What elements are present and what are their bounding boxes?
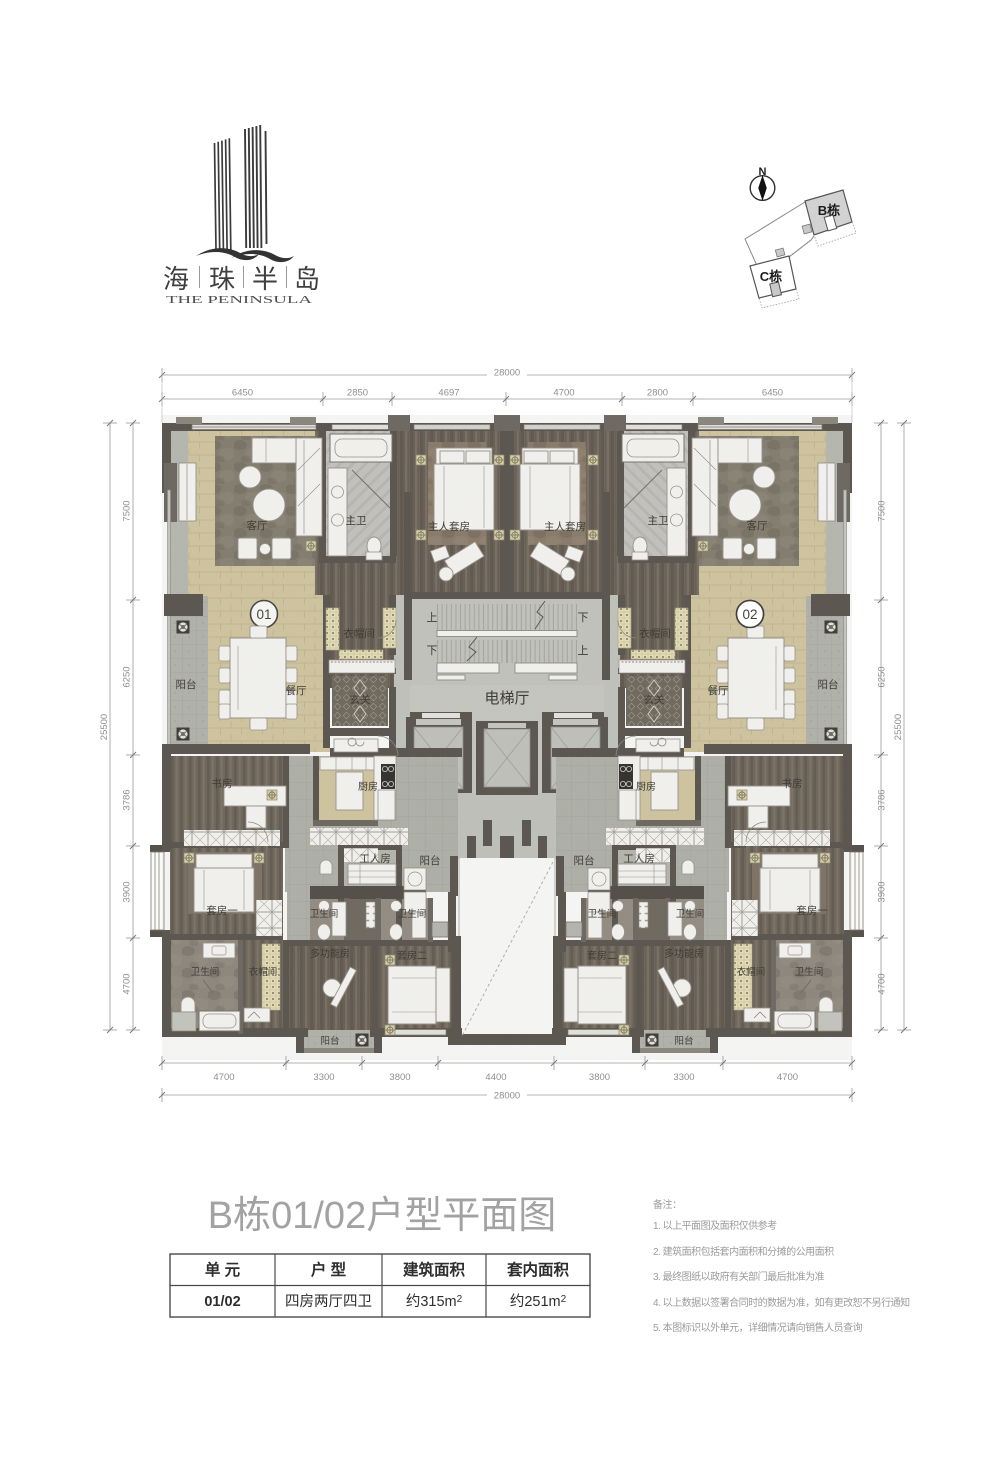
svg-text:阳台: 阳台 [674, 1035, 693, 1047]
svg-text:衣帽间: 衣帽间 [249, 966, 278, 978]
svg-text:卫生间: 卫生间 [588, 908, 617, 920]
svg-text:餐厅: 餐厅 [286, 684, 307, 697]
svg-text:01/02: 01/02 [204, 1294, 240, 1310]
svg-text:卫生间: 卫生间 [398, 908, 427, 920]
svg-text:25500: 25500 [99, 714, 110, 740]
svg-text:四房两厅四卫: 四房两厅四卫 [285, 1293, 372, 1310]
svg-text:3786: 3786 [122, 789, 133, 810]
svg-text:海: 海 [163, 264, 189, 294]
svg-text:3900: 3900 [877, 881, 888, 902]
svg-text:客厅: 客厅 [247, 519, 268, 532]
svg-text:3900: 3900 [122, 881, 133, 902]
svg-text:半: 半 [252, 264, 278, 294]
svg-text:户 型: 户 型 [311, 1260, 347, 1279]
svg-text:25500: 25500 [893, 714, 904, 740]
svg-text:卫生间: 卫生间 [191, 966, 220, 978]
svg-text:6450: 6450 [232, 388, 253, 399]
svg-text:7500: 7500 [877, 500, 888, 521]
svg-text:卫生间: 卫生间 [310, 908, 339, 920]
svg-text:28000: 28000 [494, 1091, 520, 1102]
svg-text:主人套房: 主人套房 [544, 520, 586, 533]
svg-text:阳台: 阳台 [420, 854, 441, 867]
svg-text:02: 02 [742, 607, 757, 622]
svg-text:套房二: 套房二 [587, 949, 617, 962]
svg-text:4700: 4700 [553, 388, 574, 399]
svg-text:阳台: 阳台 [818, 678, 839, 691]
svg-text:衣帽间: 衣帽间 [737, 966, 766, 978]
svg-text:B栋01/02户型平面图: B栋01/02户型平面图 [208, 1195, 556, 1237]
svg-text:书房: 书房 [212, 777, 233, 790]
svg-text:套内面积: 套内面积 [507, 1260, 570, 1279]
svg-text:主卫: 主卫 [648, 515, 669, 527]
svg-text:备注：: 备注： [653, 1198, 682, 1211]
svg-text:2800: 2800 [647, 388, 668, 399]
svg-text:4700: 4700 [777, 1072, 798, 1083]
svg-text:阳台: 阳台 [574, 854, 595, 867]
svg-text:4700: 4700 [877, 973, 888, 994]
svg-text:客厅: 客厅 [747, 519, 768, 532]
svg-text:多功能房: 多功能房 [310, 947, 350, 960]
svg-text:上: 上 [427, 611, 438, 624]
svg-text:阳台: 阳台 [176, 678, 197, 691]
svg-text:厨房: 厨房 [358, 780, 378, 793]
svg-text:多功能房: 多功能房 [664, 947, 704, 960]
svg-text:建筑面积: 建筑面积 [403, 1260, 466, 1279]
svg-text:电梯厅: 电梯厅 [484, 690, 529, 707]
svg-text:书房: 书房 [782, 777, 803, 790]
svg-text:套房一: 套房一 [796, 904, 828, 917]
svg-text:套房一: 套房一 [206, 904, 238, 917]
svg-text:下: 下 [427, 645, 438, 657]
svg-text:2850: 2850 [347, 388, 368, 399]
svg-text:2. 建筑面积包括套内面积和分摊的公用面积: 2. 建筑面积包括套内面积和分摊的公用面积 [653, 1245, 834, 1258]
svg-text:28000: 28000 [494, 368, 520, 379]
svg-text:衣帽间: 衣帽间 [343, 627, 375, 640]
svg-text:1. 以上平面图及面积仅供参考: 1. 以上平面图及面积仅供参考 [653, 1219, 777, 1232]
svg-text:4697: 4697 [438, 388, 459, 399]
svg-text:餐厅: 餐厅 [708, 684, 729, 697]
svg-text:工人房: 工人房 [623, 852, 655, 865]
svg-text:约251m2: 约251m2 [510, 1293, 567, 1310]
svg-text:4400: 4400 [485, 1072, 506, 1083]
svg-text:3. 最终图纸以政府有关部门最后批准为准: 3. 最终图纸以政府有关部门最后批准为准 [653, 1270, 825, 1283]
svg-text:3300: 3300 [313, 1072, 334, 1083]
svg-text:4. 以上数据以签署合同时的数据为准，如有更改恕不另行通知: 4. 以上数据以签署合同时的数据为准，如有更改恕不另行通知 [653, 1296, 910, 1309]
svg-text:6450: 6450 [762, 388, 783, 399]
svg-text:衣帽间: 衣帽间 [639, 627, 671, 640]
svg-text:6250: 6250 [877, 666, 888, 687]
svg-text:6250: 6250 [122, 666, 133, 687]
svg-text:主人套房: 主人套房 [428, 520, 470, 533]
svg-text:上: 上 [578, 644, 589, 657]
svg-text:套房二: 套房二 [397, 949, 427, 962]
svg-text:主卫: 主卫 [346, 515, 367, 527]
svg-text:3800: 3800 [389, 1072, 410, 1083]
svg-text:3786: 3786 [877, 789, 888, 810]
svg-text:珠: 珠 [209, 264, 235, 294]
svg-text:5. 本图标识以外单元，详细情况请向销售人员查询: 5. 本图标识以外单元，详细情况请向销售人员查询 [653, 1321, 863, 1334]
svg-text:下: 下 [578, 612, 589, 624]
svg-text:玄关: 玄关 [350, 693, 371, 706]
svg-text:3800: 3800 [589, 1072, 610, 1083]
svg-text:4700: 4700 [213, 1072, 234, 1083]
svg-text:单 元: 单 元 [205, 1260, 241, 1279]
svg-text:7500: 7500 [122, 500, 133, 521]
svg-text:厨房: 厨房 [636, 780, 656, 793]
svg-text:卫生间: 卫生间 [795, 966, 824, 978]
svg-text:约315m2: 约315m2 [406, 1293, 463, 1310]
svg-text:卫生间: 卫生间 [676, 908, 705, 920]
svg-text:B栋: B栋 [818, 203, 840, 218]
svg-text:THE PENINSULA: THE PENINSULA [166, 295, 313, 306]
svg-text:玄关: 玄关 [644, 693, 665, 706]
svg-text:C栋: C栋 [760, 269, 782, 284]
svg-text:4700: 4700 [122, 973, 133, 994]
svg-text:工人房: 工人房 [359, 852, 391, 865]
svg-text:岛: 岛 [294, 264, 320, 294]
svg-text:阳台: 阳台 [320, 1035, 339, 1047]
svg-text:3300: 3300 [673, 1072, 694, 1083]
